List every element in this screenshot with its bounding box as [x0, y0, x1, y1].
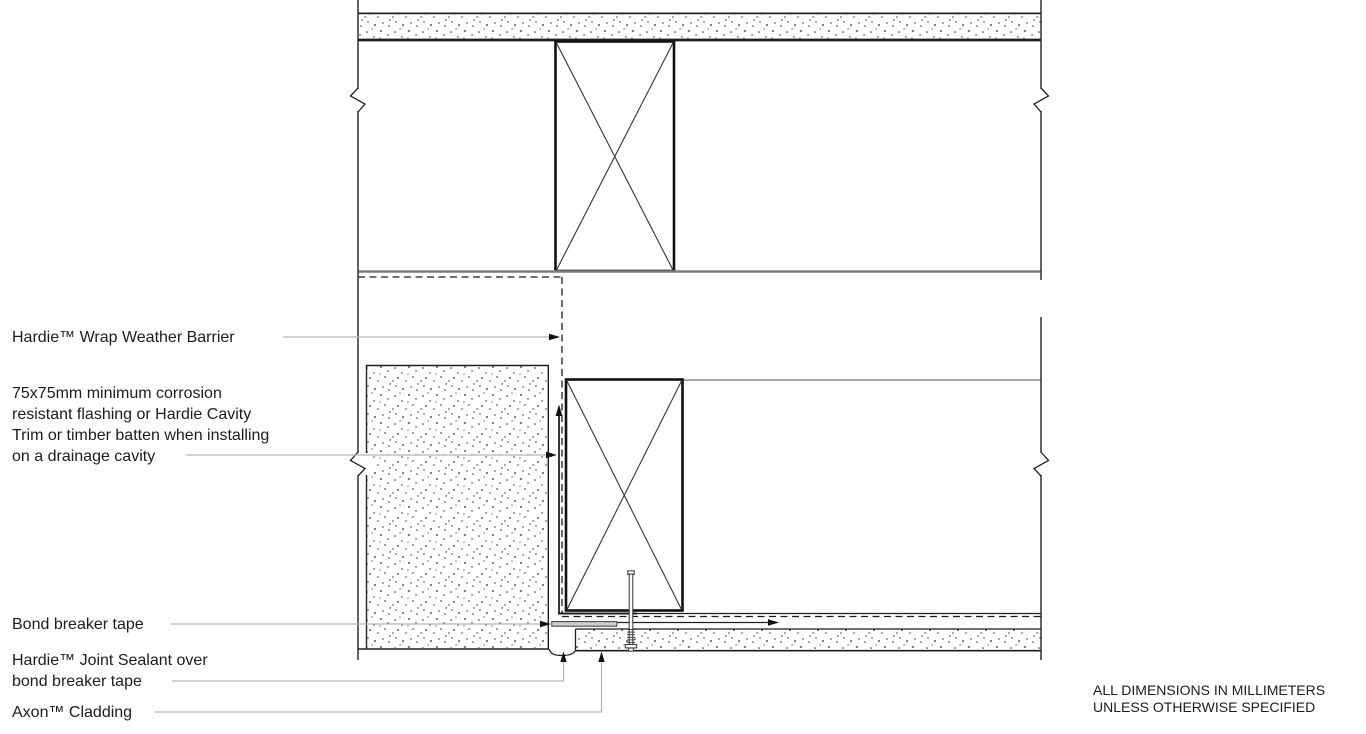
- top-cladding-sheet-fill: [359, 15, 1041, 39]
- detail-drawing-canvas: Hardie™ Wrap Weather Barrier 75x75mm min…: [0, 0, 1366, 734]
- arrowhead: [549, 334, 560, 340]
- lower-stud: [566, 380, 683, 611]
- bottom-cladding-sheet-fill: [576, 630, 1041, 651]
- arrowhead: [546, 452, 557, 458]
- bond-breaker-tape-graphic: [552, 622, 617, 627]
- label-axon-cladding: Axon™ Cladding: [12, 702, 132, 723]
- upper-stud: [556, 42, 675, 272]
- left-cladding-panel-fill: [367, 366, 548, 648]
- label-joint-sealant: Hardie™ Joint Sealant over bond breaker …: [12, 650, 208, 692]
- arrowhead: [598, 652, 604, 663]
- label-bond-breaker-tape: Bond breaker tape: [12, 614, 144, 635]
- label-flashing: 75x75mm minimum corrosion resistant flas…: [12, 383, 269, 467]
- break-symbol-bottom-right: [1032, 452, 1052, 476]
- joint-sealant-bead: [549, 649, 576, 656]
- break-symbol-top-right: [1033, 88, 1051, 112]
- break-symbol-top-left: [349, 88, 367, 112]
- label-weather-barrier: Hardie™ Wrap Weather Barrier: [12, 327, 235, 348]
- arrowhead: [560, 652, 566, 663]
- weather-barrier-leader: [283, 334, 560, 340]
- drawing-svg: [0, 0, 1366, 734]
- axon-cladding-leader: [155, 652, 605, 713]
- joint-sealant-leader: [172, 652, 567, 682]
- dimensions-note: ALL DIMENSIONS IN MILLIMETERS UNLESS OTH…: [1093, 682, 1325, 716]
